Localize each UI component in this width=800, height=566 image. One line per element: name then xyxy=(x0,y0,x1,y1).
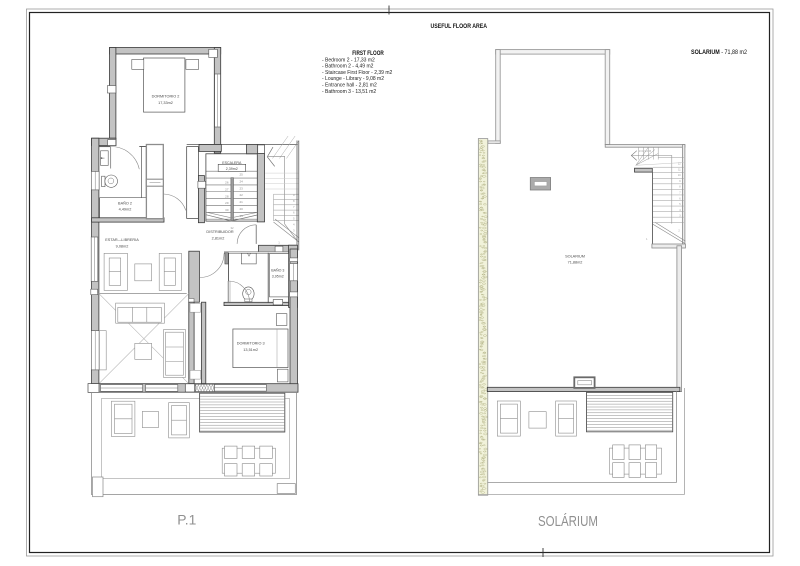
svg-text:11: 11 xyxy=(678,168,681,171)
svg-text:4: 4 xyxy=(293,223,295,227)
svg-text:6: 6 xyxy=(679,197,681,200)
svg-text:20: 20 xyxy=(240,207,244,211)
svg-text:2: 2 xyxy=(293,234,295,238)
svg-text:28: 28 xyxy=(225,194,229,198)
svg-text:6: 6 xyxy=(293,211,295,215)
svg-text:9: 9 xyxy=(293,193,295,197)
svg-text:SOLARIUM: SOLARIUM xyxy=(565,255,585,259)
svg-text:FIRST FLOOR: FIRST FLOOR xyxy=(352,51,384,57)
svg-text:21: 21 xyxy=(240,200,244,204)
svg-text:1: 1 xyxy=(646,238,648,241)
svg-text:SOLÁRIUM: SOLÁRIUM xyxy=(538,513,598,530)
svg-text:8: 8 xyxy=(679,186,681,189)
svg-text:9,08m2: 9,08m2 xyxy=(116,245,129,249)
svg-text:13,51m2: 13,51m2 xyxy=(243,348,258,352)
svg-text:5: 5 xyxy=(679,203,681,206)
svg-text:7: 7 xyxy=(293,205,295,209)
svg-text:4,49m2: 4,49m2 xyxy=(119,208,132,212)
svg-text:BAÑO 3: BAÑO 3 xyxy=(271,268,284,273)
svg-text:3: 3 xyxy=(293,228,295,232)
svg-text:26: 26 xyxy=(225,181,229,185)
svg-text:- Bedroom 2 - 17,33 m2: - Bedroom 2 - 17,33 m2 xyxy=(322,57,375,63)
svg-text:SOLARIUM - 71,88 m2: SOLARIUM - 71,88 m2 xyxy=(691,50,748,56)
svg-text:9: 9 xyxy=(679,180,681,183)
svg-text:DISTRIBUIDOR: DISTRIBUIDOR xyxy=(206,230,233,234)
svg-text:P.1: P.1 xyxy=(177,513,196,528)
svg-text:- Bathroom 3 - 13,51 m2: - Bathroom 3 - 13,51 m2 xyxy=(322,89,376,95)
svg-text:- Entrance hall - 2,81 m2: - Entrance hall - 2,81 m2 xyxy=(322,83,377,89)
svg-text:USEFUL FLOOR AREA: USEFUL FLOOR AREA xyxy=(431,23,488,30)
svg-text:12: 12 xyxy=(678,163,681,166)
svg-text:23: 23 xyxy=(240,186,244,190)
svg-text:ESTAR—LIBRERIA: ESTAR—LIBRERIA xyxy=(105,238,139,242)
svg-text:13 12 14 15: 13 12 14 15 xyxy=(639,151,652,153)
svg-text:- Bathroom 2 - 4,49 m2: - Bathroom 2 - 4,49 m2 xyxy=(322,64,374,70)
svg-text:2: 2 xyxy=(678,230,680,233)
svg-text:3,95m2: 3,95m2 xyxy=(272,275,284,279)
svg-text:32: 32 xyxy=(230,226,234,230)
svg-text:71,88m2: 71,88m2 xyxy=(568,261,583,265)
svg-text:7: 7 xyxy=(679,192,681,195)
svg-text:22: 22 xyxy=(240,193,244,197)
svg-text:DORMITORIO 2: DORMITORIO 2 xyxy=(152,95,180,99)
svg-text:- Staircase First Floor - 2,39: - Staircase First Floor - 2,39 m2 xyxy=(322,70,393,76)
svg-text:17,33m2: 17,33m2 xyxy=(158,101,173,105)
svg-text:BAÑO 2: BAÑO 2 xyxy=(118,200,132,205)
svg-text:24: 24 xyxy=(240,179,244,183)
svg-text:1: 1 xyxy=(278,241,280,245)
svg-text:5: 5 xyxy=(293,217,295,221)
svg-text:DORMITORIO 3: DORMITORIO 3 xyxy=(237,341,265,345)
svg-text:19: 19 xyxy=(240,214,244,218)
svg-text:2,39m2: 2,39m2 xyxy=(226,167,238,171)
svg-text:25: 25 xyxy=(240,173,244,177)
svg-text:27: 27 xyxy=(225,187,229,191)
svg-text:29: 29 xyxy=(225,201,229,205)
svg-text:10: 10 xyxy=(678,174,681,177)
svg-text:30: 30 xyxy=(225,208,229,212)
svg-text:2,81m2: 2,81m2 xyxy=(212,237,225,241)
svg-text:- Lounge - Library - 9,08 m2: - Lounge - Library - 9,08 m2 xyxy=(322,76,384,82)
